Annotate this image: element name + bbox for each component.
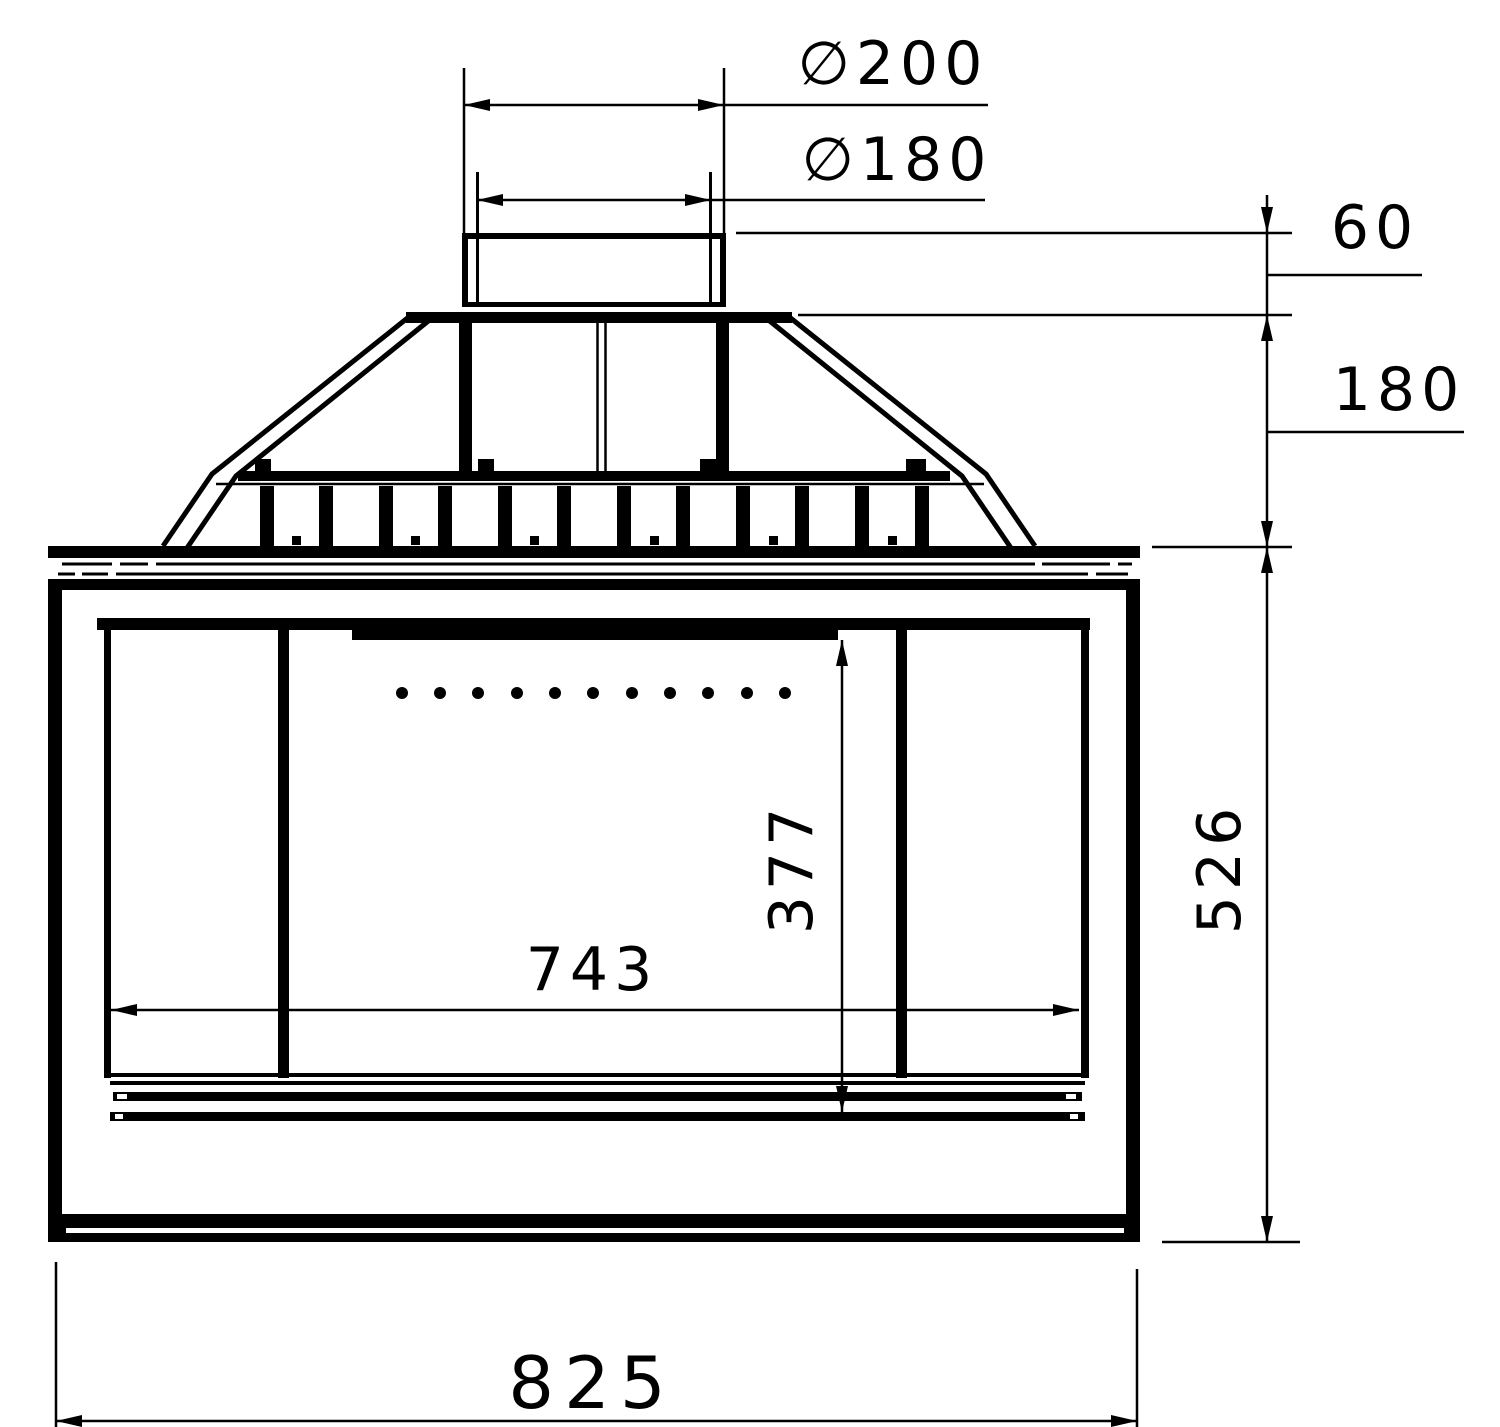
door-bottom-bar-lower bbox=[110, 1112, 1085, 1121]
label-opening-width: 743 bbox=[526, 935, 659, 1005]
body-base-seam bbox=[66, 1228, 1124, 1233]
bar-notch bbox=[1066, 1094, 1076, 1099]
hood-lug bbox=[255, 459, 271, 471]
arrowhead-down bbox=[1261, 207, 1273, 233]
arrowhead-left bbox=[111, 1004, 137, 1016]
collar-rim bbox=[462, 233, 726, 239]
hood-lug bbox=[906, 459, 926, 471]
arrowhead-up bbox=[1261, 315, 1273, 341]
air-hole bbox=[626, 687, 638, 699]
grille-support-bar bbox=[238, 471, 950, 481]
arrowhead-right bbox=[1053, 1004, 1079, 1016]
air-hole bbox=[434, 687, 446, 699]
dimension-opening-width: 743 bbox=[111, 935, 1079, 1016]
grille-post bbox=[617, 486, 631, 546]
door bbox=[97, 618, 1090, 1121]
dimension-opening-height: 377 bbox=[757, 640, 848, 1112]
arrowhead-left bbox=[464, 99, 490, 111]
body-wall-right bbox=[1126, 590, 1140, 1242]
arrowhead-right bbox=[698, 99, 724, 111]
air-hole bbox=[549, 687, 561, 699]
hood-slope-right-outer bbox=[788, 316, 1035, 546]
hood bbox=[163, 312, 1035, 548]
collar-base bbox=[462, 302, 726, 307]
air-hole bbox=[741, 687, 753, 699]
dimension-overall-width: 825 bbox=[56, 1262, 1137, 1427]
grille-post bbox=[319, 486, 333, 546]
label-flue-inner-diameter: ∅180 bbox=[802, 125, 993, 195]
grille-post bbox=[260, 486, 274, 546]
arrowhead-up bbox=[1261, 547, 1273, 573]
bar-notch bbox=[1070, 1114, 1078, 1119]
grille-pin bbox=[650, 536, 659, 545]
arrowhead-down bbox=[1261, 1216, 1273, 1242]
arrowhead-down bbox=[1261, 521, 1273, 547]
grille-post bbox=[795, 486, 809, 546]
air-hole bbox=[664, 687, 676, 699]
hood-lug bbox=[700, 459, 716, 471]
hood-slope-left-outer bbox=[163, 316, 410, 546]
air-hole bbox=[472, 687, 484, 699]
grille-post bbox=[676, 486, 690, 546]
arrowhead-right bbox=[1111, 1415, 1137, 1427]
air-hole bbox=[511, 687, 523, 699]
label-overall-width: 825 bbox=[508, 1341, 675, 1425]
grille-post bbox=[379, 486, 393, 546]
arrowhead-up bbox=[836, 640, 848, 666]
label-body-height: 526 bbox=[1185, 802, 1255, 935]
grille-pin bbox=[530, 536, 539, 545]
label-collar-height: 60 bbox=[1331, 193, 1419, 263]
grille-post bbox=[736, 486, 750, 546]
grille-post bbox=[438, 486, 452, 546]
grille-pin bbox=[769, 536, 778, 545]
baffle-plate bbox=[352, 624, 838, 640]
mounting-flange bbox=[48, 546, 1140, 590]
flange-band-bottom bbox=[48, 579, 1140, 590]
arrowhead-left bbox=[56, 1415, 82, 1427]
dimension-flue-inner: ∅180 bbox=[477, 125, 992, 206]
grille-posts bbox=[260, 486, 929, 546]
label-flue-outer-diameter: ∅200 bbox=[798, 29, 989, 99]
grille-pin bbox=[888, 536, 897, 545]
air-holes bbox=[396, 687, 791, 699]
arrowhead-right bbox=[685, 194, 711, 206]
flue-collar bbox=[462, 172, 726, 307]
grille-pin bbox=[292, 536, 301, 545]
grille-post bbox=[915, 486, 929, 546]
arrowhead-left bbox=[477, 194, 503, 206]
air-hole bbox=[587, 687, 599, 699]
air-hole bbox=[702, 687, 714, 699]
grille-pin bbox=[411, 536, 420, 545]
hood-slope-left-inner bbox=[187, 318, 432, 548]
duct-wall-left bbox=[459, 323, 472, 471]
door-bottom-bar-upper bbox=[113, 1092, 1082, 1101]
air-hole bbox=[779, 687, 791, 699]
label-opening-height: 377 bbox=[757, 802, 827, 935]
bar-notch bbox=[115, 1114, 123, 1119]
flange-band-top bbox=[48, 546, 1140, 558]
grille-post bbox=[557, 486, 571, 546]
grille-post bbox=[498, 486, 512, 546]
hood-lug bbox=[478, 459, 494, 471]
technical-drawing: ∅200 ∅180 bbox=[0, 0, 1500, 1427]
collar-wall-left bbox=[462, 239, 468, 304]
hood-top-plate bbox=[406, 312, 792, 323]
bar-notch bbox=[117, 1094, 127, 1099]
label-hood-height: 180 bbox=[1333, 355, 1466, 425]
door-jamb-right bbox=[1081, 630, 1089, 1078]
door-jamb-left bbox=[104, 630, 111, 1078]
body-wall-left bbox=[48, 590, 62, 1242]
collar-wall-right bbox=[720, 239, 726, 304]
grille-post bbox=[855, 486, 869, 546]
duct-wall-right bbox=[716, 323, 729, 471]
air-hole bbox=[396, 687, 408, 699]
drawing-canvas: ∅200 ∅180 bbox=[0, 0, 1500, 1427]
